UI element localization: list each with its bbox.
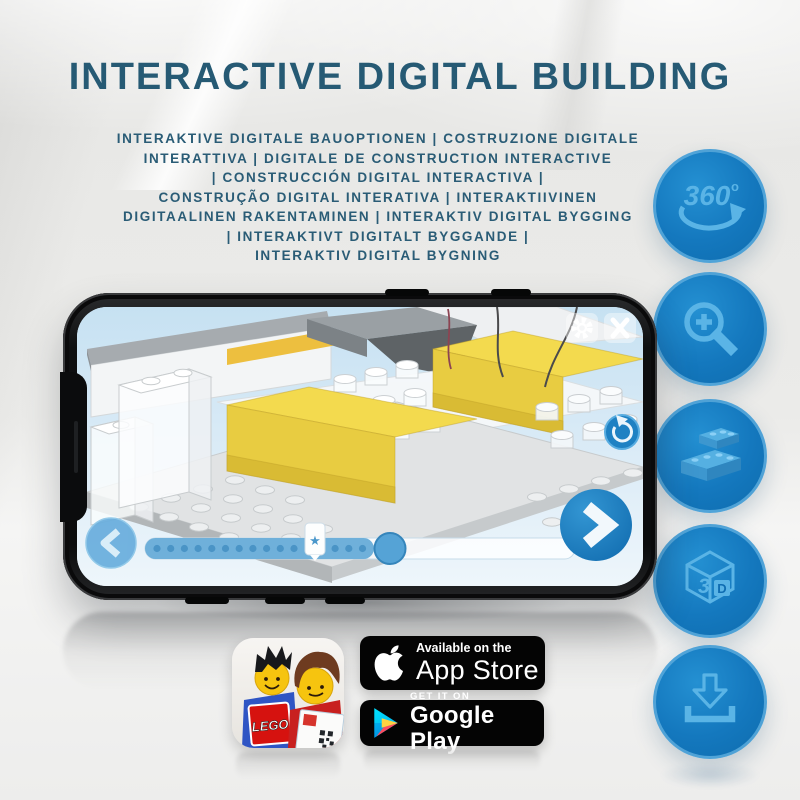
phone-side-button <box>185 597 229 604</box>
lego-app-icon[interactable]: LEGO <box>232 638 344 748</box>
degree-mark: o <box>731 179 739 194</box>
feature-3d: 3 D <box>653 524 767 638</box>
lego-logo: LEGO <box>251 716 289 734</box>
subtitle-line: DIGITAALINEN RAKENTAMINEN | INTERAKTIV D… <box>58 207 698 227</box>
3d-digit: 3 <box>698 575 710 598</box>
phone-side-button <box>385 289 429 296</box>
lego-bricks-icon <box>673 419 747 493</box>
360-label: 360 <box>684 180 731 211</box>
google-play-label: Google Play <box>410 703 544 755</box>
multilingual-subtitle: INTERAKTIVE DIGITALE BAUOPTIONEN | COSTR… <box>58 129 698 266</box>
star-step-marker[interactable]: ★ <box>305 523 325 561</box>
feature-download <box>653 645 767 759</box>
lego-minifigures-illustration: LEGO <box>232 638 344 748</box>
zoom-in-icon <box>673 292 747 366</box>
3d-cube-icon: 3 D <box>673 544 747 618</box>
3d-letter: D <box>717 581 726 596</box>
progress-thumb[interactable] <box>375 533 406 564</box>
google-play-badge[interactable]: GET IT ON Google Play <box>360 700 544 746</box>
next-step-button[interactable] <box>560 489 632 561</box>
close-button[interactable] <box>604 313 636 343</box>
subtitle-line: INTERATTIVA | DIGITALE DE CONSTRUCTION I… <box>58 149 698 169</box>
feature-bricks <box>653 399 767 513</box>
page-title: INTERACTIVE DIGITAL BUILDING <box>0 56 800 99</box>
app-store-tagline: Available on the <box>416 641 539 656</box>
app-store-badge[interactable]: Available on the App Store <box>360 636 545 690</box>
download-icon <box>673 665 747 739</box>
subtitle-line: | INTERAKTIVT DIGITALT BYGGANDE | <box>58 227 698 247</box>
subtitle-line: | CONSTRUCCIÓN DIGITAL INTERACTIVA | <box>58 168 698 188</box>
smartphone: ★ <box>63 293 657 600</box>
phone-side-button <box>325 597 365 604</box>
previous-step-button[interactable] <box>86 518 136 568</box>
360-rotation-icon: 360 o <box>671 169 749 243</box>
app-icon-reflection <box>236 752 340 778</box>
svg-text:★: ★ <box>309 533 321 548</box>
badge-reflection <box>364 750 540 770</box>
marketing-page: INTERACTIVE DIGITAL BUILDING INTERAKTIVE… <box>0 0 800 800</box>
subtitle-line: CONSTRUÇÃO DIGITAL INTERATIVA | INTERAKT… <box>58 188 698 208</box>
google-play-icon <box>373 707 399 739</box>
subtitle-line: INTERAKTIVE DIGITALE BAUOPTIONEN | COSTR… <box>58 129 698 149</box>
settings-button[interactable] <box>566 313 598 343</box>
feature-360-rotation: 360 o <box>653 149 767 263</box>
rotate-button[interactable] <box>605 415 639 449</box>
apple-icon <box>373 642 405 684</box>
phone-side-button <box>265 597 305 604</box>
feature-zoom <box>653 272 767 386</box>
phone-notch <box>60 372 87 522</box>
app-store-label: App Store <box>416 656 539 685</box>
phone-side-button <box>491 289 531 296</box>
circle-reflection <box>660 762 760 788</box>
subtitle-line: INTERAKTIV DIGITAL BYGNING <box>58 246 698 266</box>
phone-screen: ★ <box>77 307 643 586</box>
